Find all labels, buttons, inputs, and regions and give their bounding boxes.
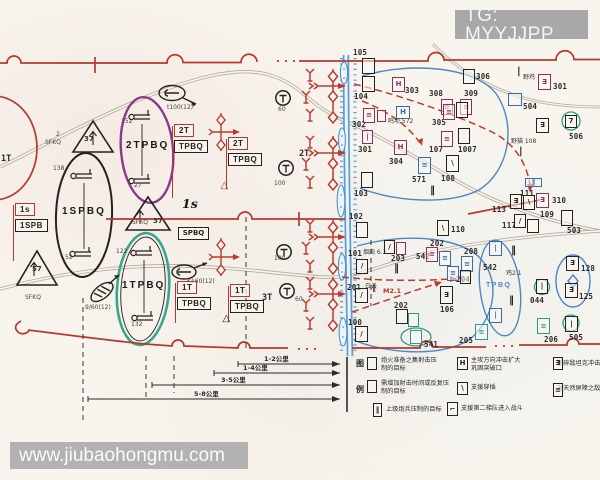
- oval-label-2tpbq: 2TPBQ: [126, 141, 169, 151]
- flag-label-bottom: 1SPB: [15, 219, 48, 232]
- unit-label-2t: 2T: [299, 150, 309, 159]
- target-box-504: [508, 93, 522, 106]
- place-label: 野猫 108: [511, 139, 536, 145]
- obs-label: 100: [274, 181, 285, 187]
- box-302b: [377, 110, 386, 122]
- target-box-101: /: [356, 259, 368, 274]
- target-number-506: 506: [569, 133, 583, 141]
- target-number-108: 108: [441, 175, 455, 183]
- target-number-044: 044: [530, 297, 544, 305]
- legend-sym-crush-tanks: ∃: [553, 357, 563, 370]
- target-number: 113: [492, 206, 506, 214]
- box-202c: [408, 313, 419, 327]
- legend-text: 支援第二梯队进入战斗: [461, 406, 523, 412]
- target-box-1007: [458, 128, 470, 144]
- target-box-304: H: [394, 140, 407, 155]
- flag-label-bottom: TPBQ: [177, 297, 211, 310]
- target-box-202: ≡: [426, 247, 438, 262]
- legend-sym-second-echelon: ⌐: [447, 402, 458, 416]
- obs-label: 100: [274, 256, 285, 262]
- flag-pole: [13, 205, 14, 261]
- flag-label-top: 2T: [174, 124, 194, 137]
- obstacle-bar: |: [517, 67, 521, 77]
- obs-label: 60: [295, 297, 303, 303]
- place-label: 野鸡: [523, 75, 535, 81]
- legend-text: 巩固突破口: [471, 366, 502, 372]
- box-307: [456, 102, 468, 118]
- oval-label-1tpbq: 1TPBQ: [122, 281, 165, 291]
- target-number-303: 303: [405, 87, 419, 95]
- target-box-044: |: [536, 279, 548, 294]
- obstacle-bars: ‖: [511, 246, 516, 256]
- target-number-203: 203: [391, 255, 405, 263]
- legend-text: 对天然屏障之敌: [557, 386, 600, 392]
- box-108r: ∃: [536, 118, 549, 133]
- target-number-101: 101: [348, 250, 362, 258]
- target-box-305: ≡: [443, 104, 455, 120]
- target-number-505: 505: [569, 334, 583, 342]
- oval-label-1spbq: 1SPBQ: [62, 207, 106, 217]
- legend-sym-higher-arty: ‖: [373, 403, 382, 417]
- legend-text: 支援穿插: [471, 385, 496, 391]
- arty-number: 52: [65, 255, 73, 261]
- legend-sym-barrier: ≡: [553, 383, 563, 397]
- obstacle-bars: ‖: [509, 296, 514, 306]
- target-box-107: ≡: [441, 131, 453, 147]
- triangle-number: 37: [153, 218, 163, 225]
- oval-label-tpbq-blue: TPBQ: [486, 282, 511, 289]
- target-box-306: [463, 69, 475, 84]
- legend-sym-infiltration: \: [457, 382, 468, 395]
- target-box-542: ≡: [439, 251, 451, 266]
- target-number-106: 106: [440, 306, 454, 314]
- box-310c: \: [523, 195, 535, 210]
- flag-label-top: 1T: [177, 281, 197, 294]
- recon-label: t100(12): [167, 105, 193, 111]
- obstacle-bars: ‖: [394, 264, 399, 274]
- target-box-106: ∃: [440, 286, 453, 304]
- target-box-203: /: [384, 240, 395, 254]
- target-box-506: 7: [565, 115, 577, 128]
- target-box-100: /: [355, 326, 368, 342]
- target-number-205: 205: [459, 337, 473, 345]
- flag-label-top: 1s: [15, 203, 35, 216]
- watermark-tg-text: TG: MYYJJPP: [465, 6, 588, 44]
- target-box-201: /: [355, 288, 368, 303]
- place-label: 鸣坝 572: [388, 119, 413, 125]
- tactical-map: 2TPBQ1SPBQ1TPBQTPBQ1s2T3T1T6010010060t10…: [0, 0, 600, 480]
- target-box-125: ∃: [565, 283, 578, 298]
- flag-label-bottom: TPBQ: [230, 300, 264, 313]
- distance-label: 5-8公里: [194, 391, 219, 398]
- legend-title: 例: [356, 386, 364, 394]
- flag-label-bottom: TPBQ: [174, 140, 208, 153]
- box-542b: |: [489, 241, 502, 256]
- target-box-301: |: [362, 130, 373, 144]
- legend-text: 炮火准备之集射击压: [381, 358, 437, 364]
- target-number: 109: [540, 211, 554, 219]
- target-box-310: ∃: [536, 193, 549, 208]
- sfkq-sup: 2: [56, 132, 60, 138]
- box-117b: [527, 219, 539, 233]
- legend-text: 粉碎敌坦克冲击: [557, 361, 600, 367]
- place-label: 烟囱 6.2: [363, 250, 386, 256]
- legend-text: 主攻方向冲击扩大: [471, 358, 521, 364]
- triangle-number: 37: [84, 136, 94, 143]
- target-number-103: 103: [354, 190, 368, 198]
- legend-sym-main-attack: H: [457, 357, 468, 370]
- watermark-site-text: www.jiubaohongmu.com: [19, 446, 225, 465]
- legend-text: 制的目标: [381, 366, 406, 372]
- target-number-542: 542: [483, 264, 497, 272]
- phase-label-1s: 1s: [182, 198, 198, 211]
- place-label: 鸡2.1: [506, 271, 522, 277]
- target-box-108: \: [446, 155, 459, 172]
- target-number-125: 125: [579, 293, 593, 301]
- distance-label: 3-5公里: [221, 377, 246, 384]
- obstacle-bars: ‖: [430, 186, 435, 196]
- target-number-305: 305: [432, 119, 446, 127]
- flag-label-top: 1T: [230, 284, 250, 297]
- box-203b: [396, 242, 406, 255]
- sfkq-label: SFKQ: [45, 140, 61, 146]
- map-overlay: 2TPBQ1SPBQ1TPBQTPBQ1s2T3T1T6010010060t10…: [0, 0, 600, 480]
- unit-flag-1s: 1s1SPB: [13, 203, 48, 235]
- target-number-503: 503: [567, 227, 581, 235]
- target-number-206: 206: [544, 336, 558, 344]
- arty-number: 152: [121, 119, 132, 125]
- target-number-310: 310: [552, 197, 566, 205]
- arty-number: 27: [134, 183, 142, 189]
- box-301r: ∃: [538, 74, 551, 90]
- box-202b: [396, 309, 408, 324]
- unit-label-1t: 1T: [1, 155, 11, 164]
- target-box-206: ≡: [537, 318, 550, 334]
- unit-flag-1T: 1TTPBQ: [175, 281, 211, 313]
- target-box-103: [361, 172, 373, 188]
- triangle-number: 57: [32, 266, 42, 273]
- recon-label: 9/60(12): [85, 305, 111, 311]
- target-box-505: |: [565, 316, 578, 332]
- unit-flag-2T: 2TTPBQ△: [226, 137, 262, 169]
- obstacle-bar: |: [519, 147, 523, 157]
- unit-flag-2T: 2TTPBQ: [172, 124, 208, 156]
- target-number-541: 541: [424, 341, 438, 349]
- target-box-117: /: [514, 214, 526, 228]
- flag-pole: [172, 126, 173, 198]
- target-number-308: 308: [429, 90, 443, 98]
- target-number-301: 301: [553, 83, 567, 91]
- legend-text: 上级炮兵压制的目标: [386, 407, 442, 413]
- arty-number: 138: [53, 166, 64, 172]
- unit-flag-1T: 1TTPBQ△: [228, 284, 264, 316]
- target-number-105: 105: [353, 49, 367, 57]
- target-box-571: ≡: [418, 157, 431, 174]
- target-box-303: H: [392, 77, 405, 92]
- distance-label: 1-4公里: [243, 365, 268, 372]
- target-number-571: 571: [412, 176, 426, 184]
- place-label: M2.1: [383, 288, 401, 295]
- box-310b: ∃: [510, 194, 522, 209]
- target-box-104: [362, 76, 375, 92]
- sfkq-label: SFKQ: [132, 220, 148, 226]
- flag-pole: [175, 283, 176, 323]
- target-box-102: [356, 222, 368, 238]
- flag-label-top: 2T: [228, 137, 248, 150]
- watermark-tg: TG: MYYJJPP: [455, 10, 588, 39]
- target-box-541: [410, 330, 422, 344]
- legend-sym-prep-target: [367, 357, 377, 370]
- target-box-204: ≡: [447, 266, 459, 281]
- sfkq-label: SFKQ: [25, 295, 41, 301]
- obstacle-bars: ‖: [372, 284, 376, 292]
- target-number-301: 301: [358, 146, 372, 154]
- target-box-205: ≡: [475, 324, 488, 340]
- obs-label: 60: [278, 107, 286, 113]
- box-tpbq2: |: [489, 308, 502, 323]
- legend-sym-repeat-target: [367, 380, 377, 393]
- target-box-128: ∃: [566, 256, 579, 271]
- legend-text: 制的目标: [381, 389, 406, 395]
- target-number-104: 104: [354, 93, 368, 101]
- watermark-site: www.jiubaohongmu.com: [10, 442, 248, 469]
- target-box-105: [362, 58, 375, 74]
- target-number-102: 102: [349, 213, 363, 221]
- target-number-128: 128: [581, 265, 595, 273]
- arty-number: 122: [116, 249, 127, 255]
- target-number-110: 110: [451, 226, 465, 234]
- distance-label: 1-2公里: [264, 356, 289, 363]
- target-number-306: 306: [476, 73, 490, 81]
- target-box-110: \: [437, 220, 449, 236]
- flag-triangle: △: [223, 314, 231, 324]
- legend-title: 图: [356, 360, 364, 368]
- target-box-111: ‖: [525, 178, 542, 187]
- target-box-302: ≡: [363, 108, 375, 123]
- target-number-309: 309: [464, 90, 478, 98]
- flag-label-bottom: TPBQ: [228, 153, 262, 166]
- target-number-208: 208: [464, 248, 478, 256]
- target-number-504: 504: [523, 103, 537, 111]
- target-number-1007: 1007: [458, 146, 477, 154]
- flag-triangle: △: [221, 181, 229, 191]
- target-number-304: 304: [389, 158, 403, 166]
- target-number-107: 107: [429, 146, 443, 154]
- box-572: H: [396, 106, 410, 119]
- target-box-503: [561, 210, 573, 226]
- spbq-box: SPBQ: [178, 227, 209, 240]
- legend-text: 需增加射击时间或反复压: [381, 381, 449, 387]
- arty-number: 132: [131, 322, 142, 328]
- box-204b: [460, 270, 471, 284]
